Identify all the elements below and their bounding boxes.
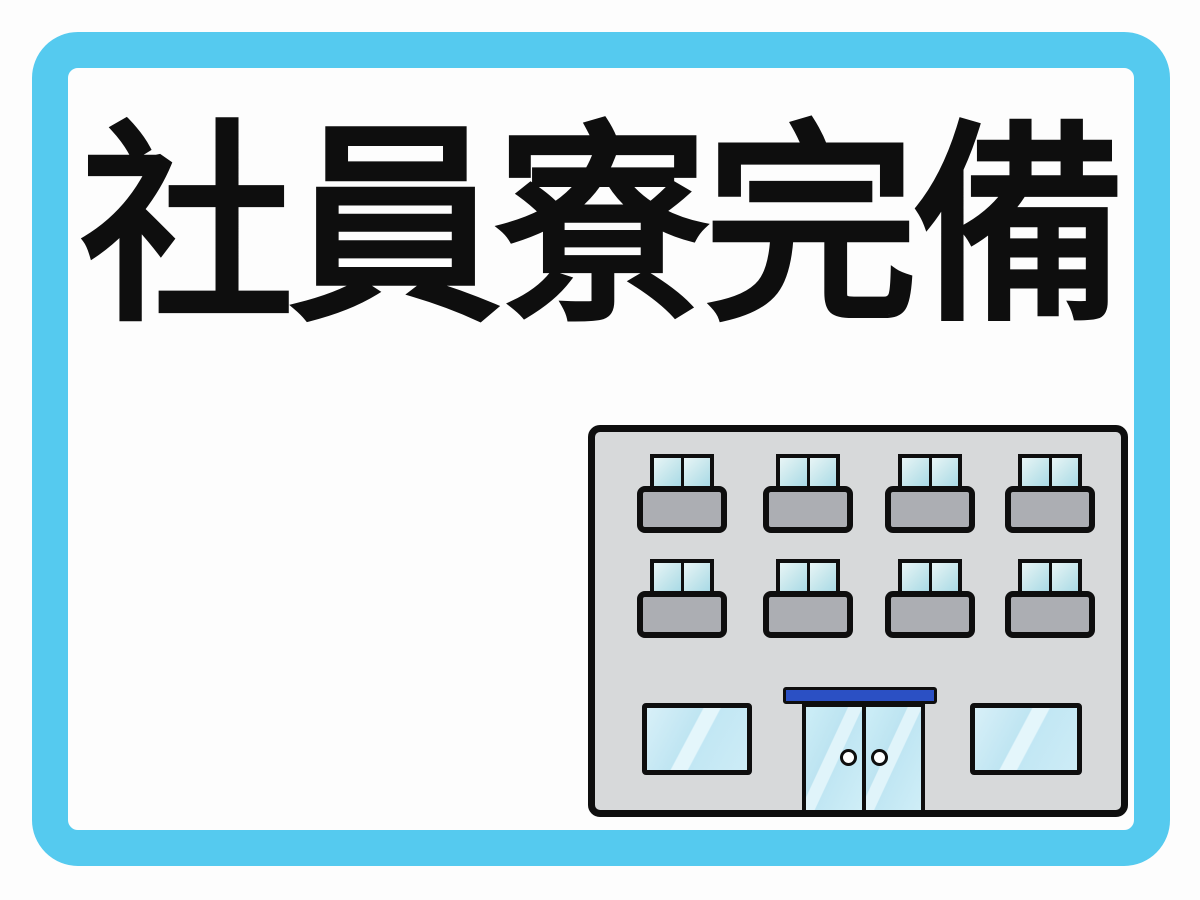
balcony-ledge bbox=[637, 486, 727, 533]
balcony-window-icon bbox=[650, 559, 714, 594]
poster: 社員寮完備 bbox=[0, 0, 1200, 900]
balcony-unit bbox=[637, 454, 727, 533]
window-pane bbox=[1022, 563, 1049, 591]
balcony-window-icon bbox=[898, 559, 962, 594]
window-pane bbox=[780, 458, 807, 486]
window-pane bbox=[684, 458, 711, 486]
balcony-unit bbox=[763, 454, 853, 533]
window-pane bbox=[810, 563, 837, 591]
window-pane bbox=[1052, 458, 1079, 486]
window-pane bbox=[932, 458, 959, 486]
entrance-doors bbox=[802, 703, 925, 810]
balcony-window-icon bbox=[776, 454, 840, 489]
balcony-ledge bbox=[1005, 486, 1095, 533]
window-pane bbox=[654, 563, 681, 591]
entrance-awning bbox=[783, 687, 937, 704]
window-pane bbox=[932, 563, 959, 591]
balcony-ledge bbox=[1005, 591, 1095, 638]
balcony-ledge bbox=[763, 591, 853, 638]
balcony-ledge bbox=[885, 486, 975, 533]
balcony-window-icon bbox=[776, 559, 840, 594]
ground-floor-window-right bbox=[970, 703, 1082, 775]
balcony-window-icon bbox=[898, 454, 962, 489]
door-handle-icon bbox=[871, 749, 888, 766]
door-handle-icon bbox=[840, 749, 857, 766]
balcony-unit bbox=[763, 559, 853, 638]
window-pane bbox=[902, 563, 929, 591]
balcony-unit bbox=[885, 559, 975, 638]
window-pane bbox=[902, 458, 929, 486]
balcony-unit bbox=[637, 559, 727, 638]
balcony-unit bbox=[1005, 454, 1095, 533]
window-pane bbox=[780, 563, 807, 591]
dormitory-building-illustration bbox=[588, 425, 1128, 817]
window-pane bbox=[1052, 563, 1079, 591]
ground-floor-window-left bbox=[642, 703, 752, 775]
poster-title: 社員寮完備 bbox=[55, 116, 1145, 341]
window-pane bbox=[684, 563, 711, 591]
balcony-ledge bbox=[637, 591, 727, 638]
balcony-window-icon bbox=[1018, 559, 1082, 594]
window-pane bbox=[1022, 458, 1049, 486]
window-pane bbox=[810, 458, 837, 486]
door-leaf-left bbox=[806, 707, 862, 810]
window-pane bbox=[654, 458, 681, 486]
balcony-unit bbox=[1005, 559, 1095, 638]
balcony-ledge bbox=[763, 486, 853, 533]
balcony-ledge bbox=[885, 591, 975, 638]
door-leaf-right bbox=[866, 707, 922, 810]
balcony-window-icon bbox=[1018, 454, 1082, 489]
balcony-unit bbox=[885, 454, 975, 533]
balcony-window-icon bbox=[650, 454, 714, 489]
